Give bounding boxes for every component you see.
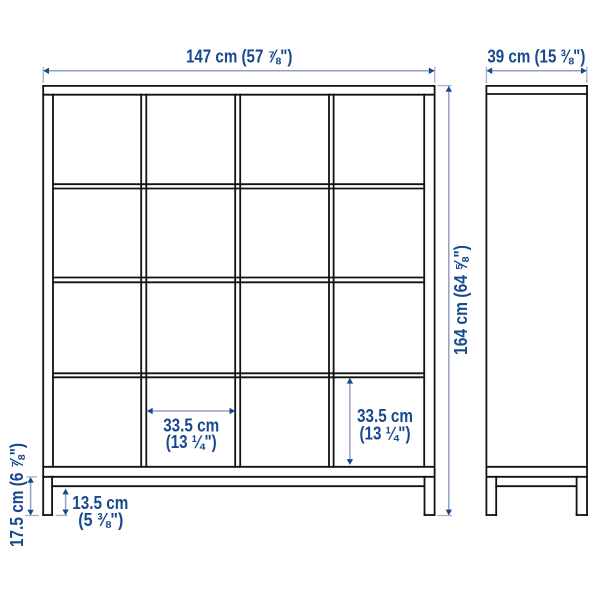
svg-text:39 cm (15 ⅜"): 39 cm (15 ⅜") xyxy=(487,47,585,67)
svg-text:17.5 cm (6 ⅞"): 17.5 cm (6 ⅞") xyxy=(7,443,27,547)
svg-text:(13 ¼"): (13 ¼") xyxy=(166,432,217,452)
svg-text:147 cm (57 ⅞"): 147 cm (57 ⅞") xyxy=(186,47,293,67)
svg-text:(5 ⅜"): (5 ⅜") xyxy=(78,510,123,530)
svg-text:164 cm (64 ⅝"): 164 cm (64 ⅝") xyxy=(451,245,471,355)
svg-text:(13 ¼"): (13 ¼") xyxy=(360,424,411,444)
